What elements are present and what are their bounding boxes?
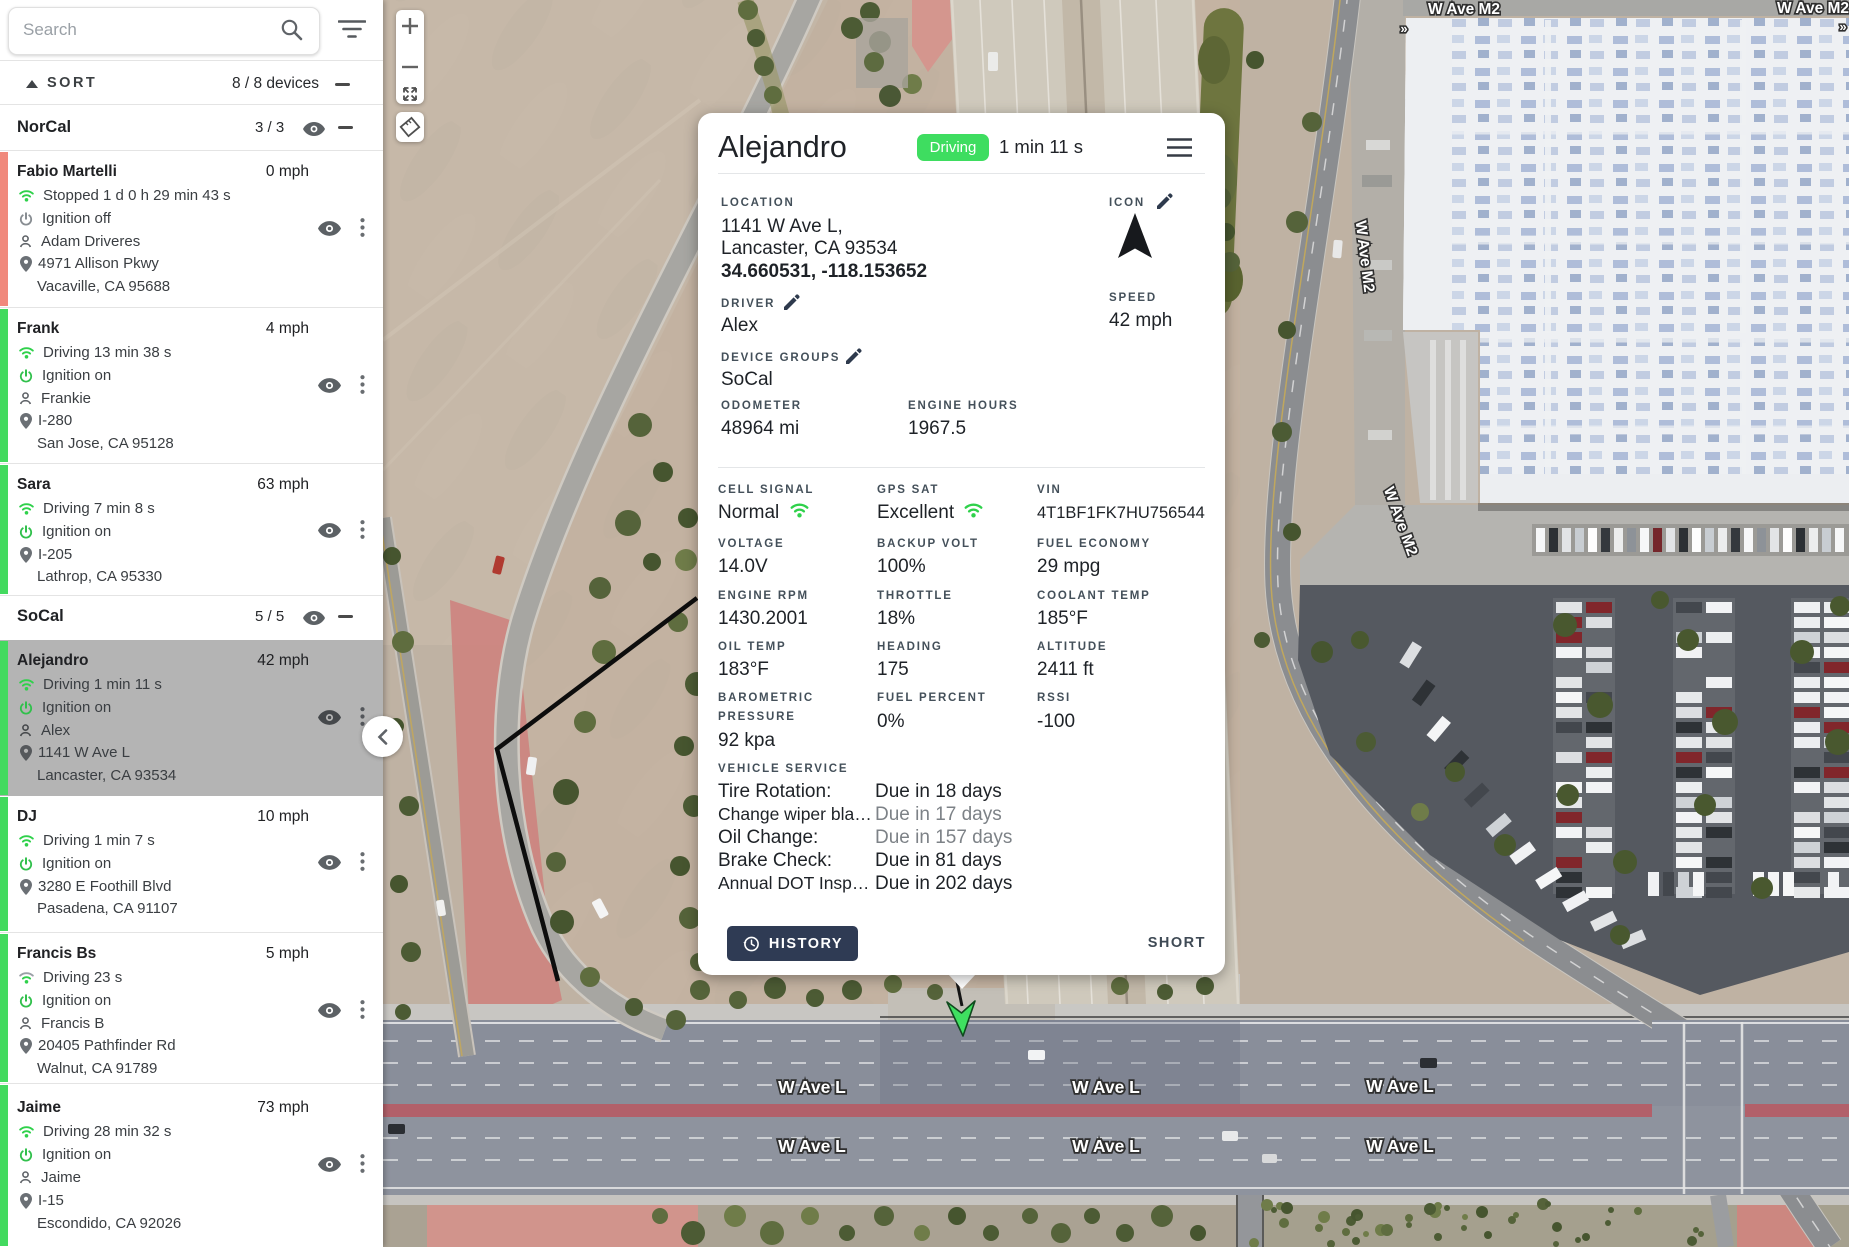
svg-text:W Ave L: W Ave L: [1366, 1076, 1434, 1096]
svg-text:W Ave L: W Ave L: [1072, 1136, 1140, 1156]
svg-text:W Ave M2: W Ave M2: [1428, 1, 1500, 18]
svg-text:W Ave M2: W Ave M2: [1777, 0, 1849, 17]
svg-text:»: »: [1400, 21, 1407, 36]
svg-text:W Ave L: W Ave L: [1366, 1136, 1434, 1156]
svg-text:W Ave L: W Ave L: [778, 1136, 846, 1156]
svg-text:»: »: [1839, 19, 1846, 34]
svg-text:W Ave L: W Ave L: [778, 1077, 846, 1097]
svg-text:W Ave L: W Ave L: [1072, 1077, 1140, 1097]
